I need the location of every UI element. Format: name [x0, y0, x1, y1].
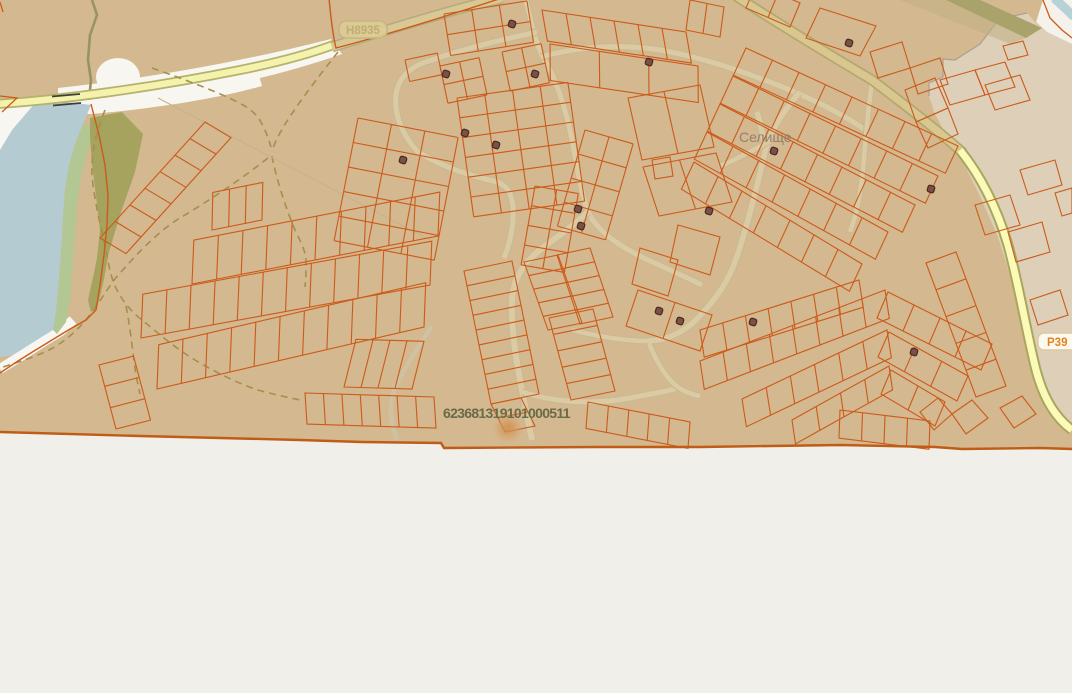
- svg-text:Н8935: Н8935: [346, 25, 380, 37]
- svg-text:623681319101000511: 623681319101000511: [443, 405, 571, 421]
- svg-text:Селище: Селище: [739, 129, 792, 145]
- svg-text:Р39: Р39: [1047, 337, 1067, 349]
